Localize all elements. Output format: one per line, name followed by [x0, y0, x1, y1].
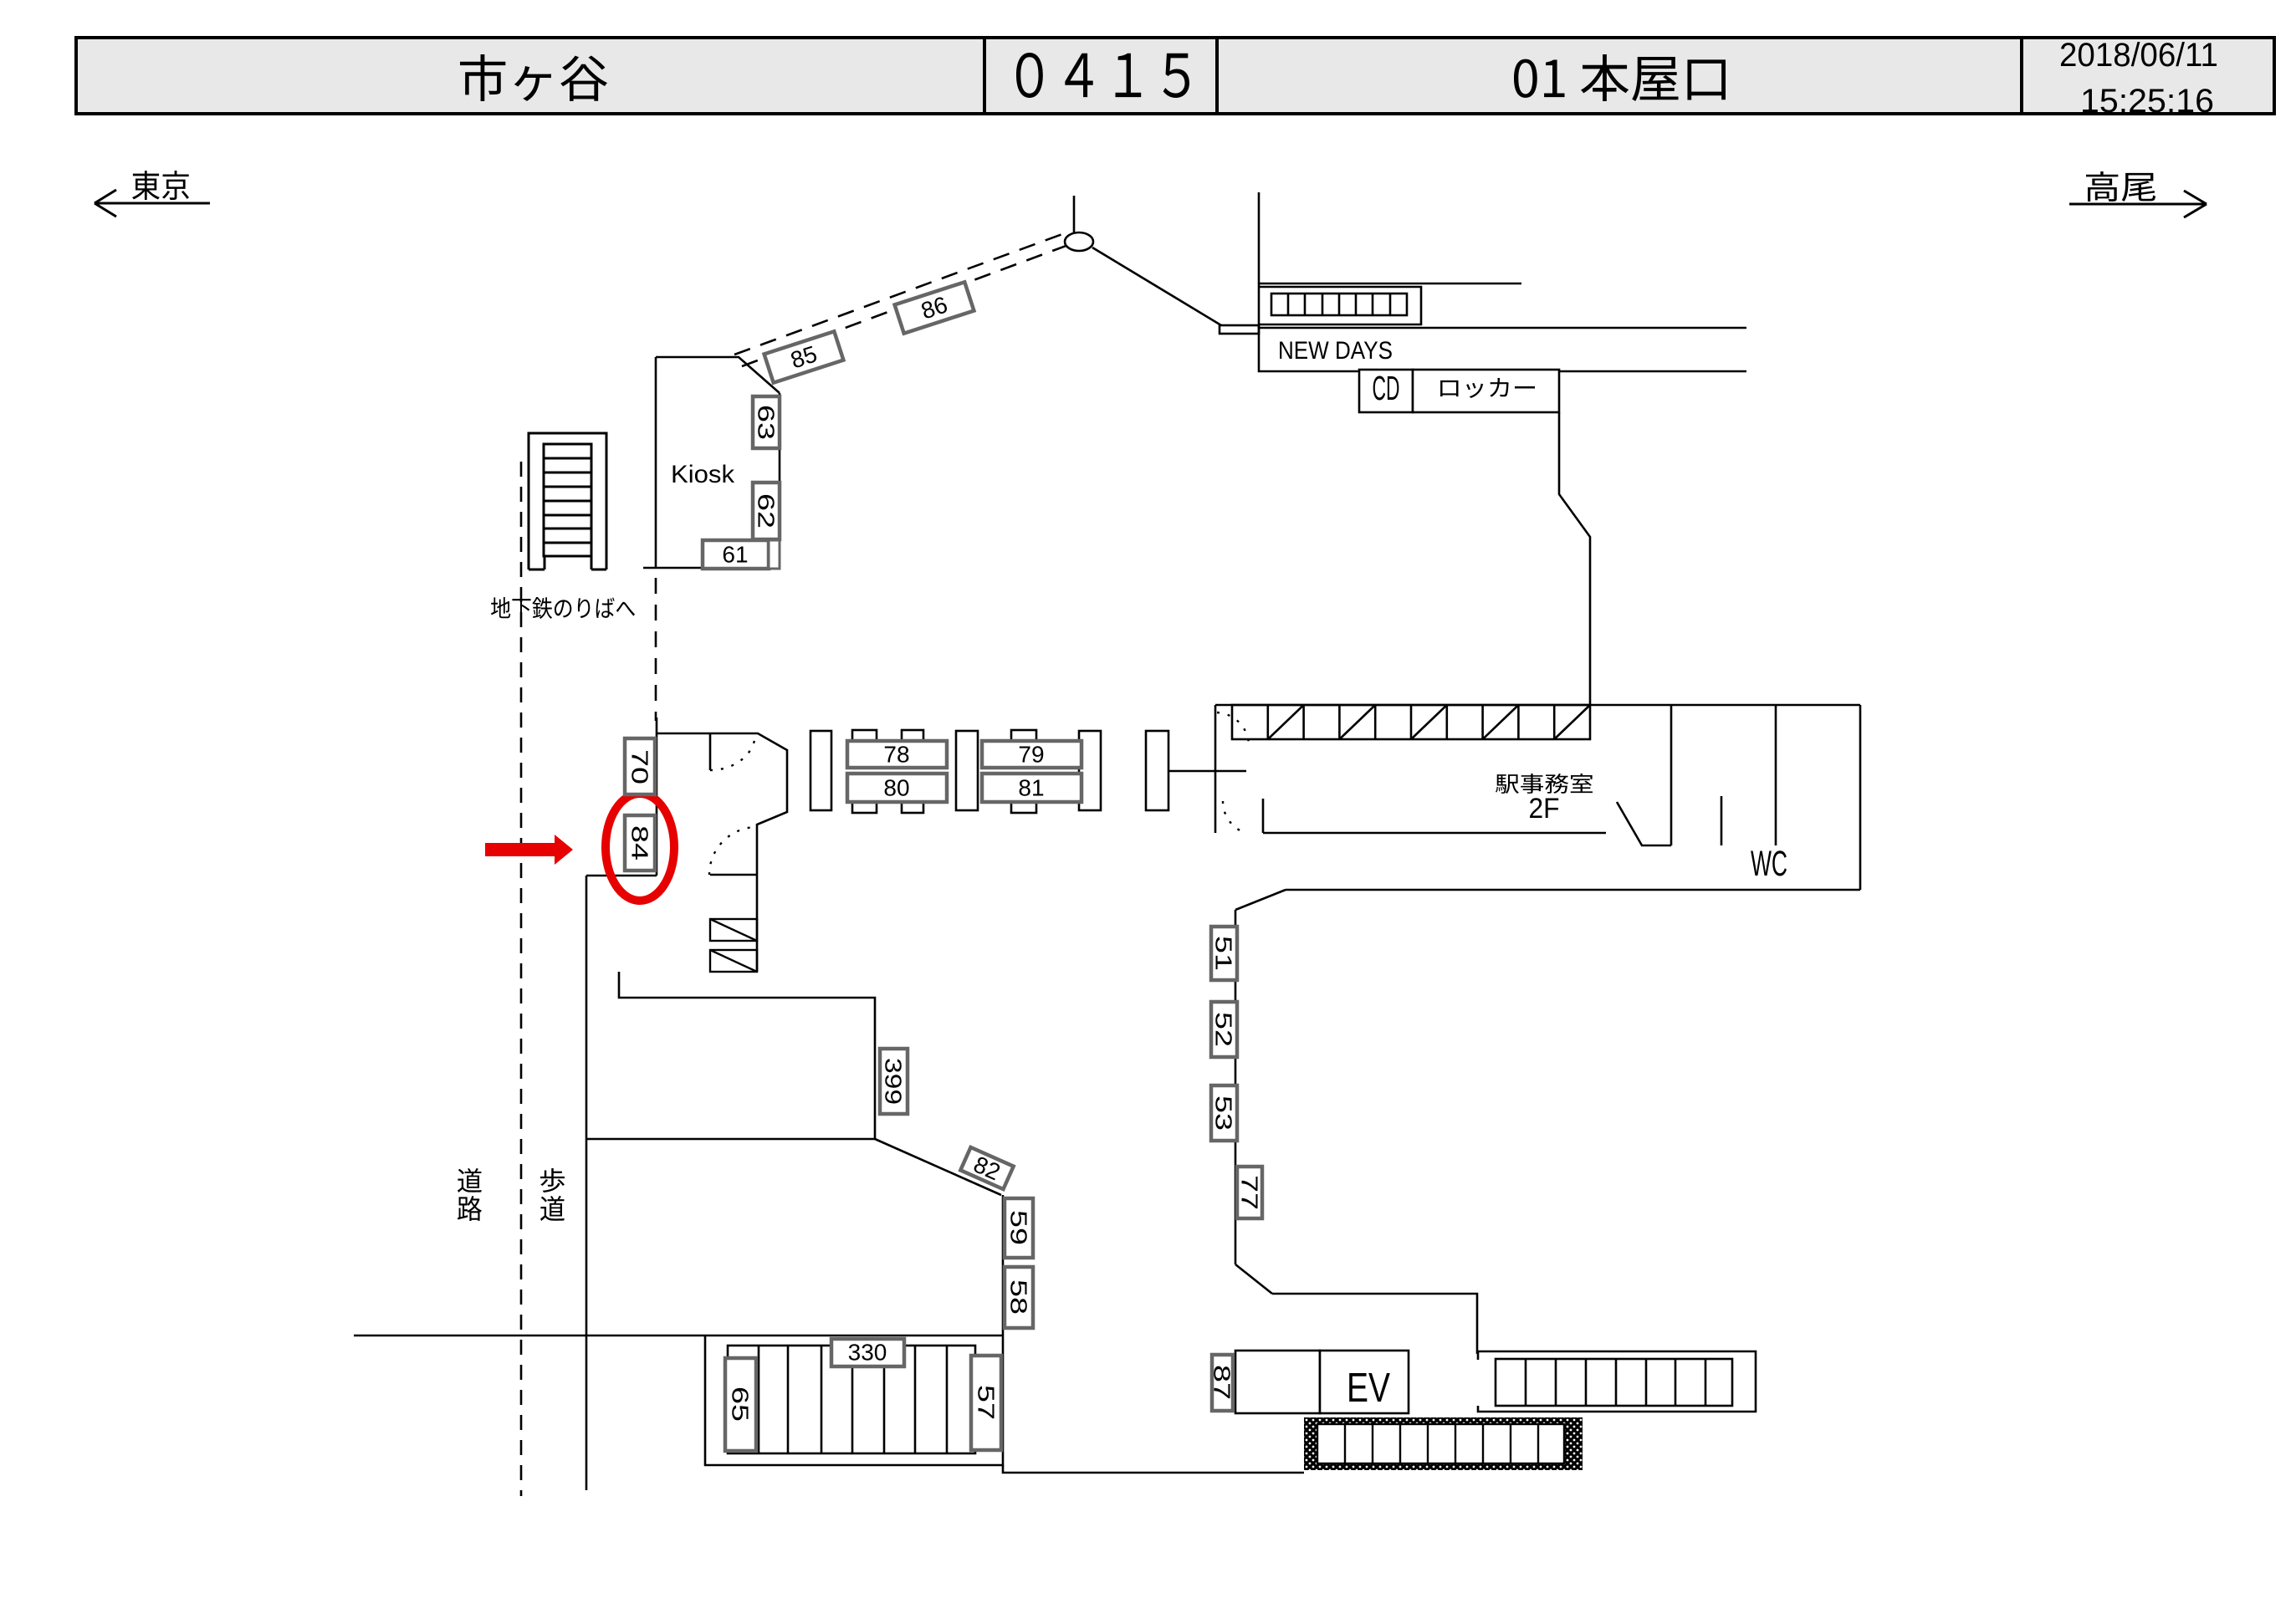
- svg-text:61: 61: [722, 542, 748, 568]
- svg-text:81: 81: [1018, 775, 1044, 801]
- svg-text:Kiosk: Kiosk: [671, 461, 735, 488]
- svg-text:87: 87: [1209, 1365, 1235, 1400]
- svg-text:78: 78: [883, 742, 909, 768]
- svg-text:80: 80: [883, 775, 909, 801]
- svg-text:2018/06/11: 2018/06/11: [2059, 37, 2218, 74]
- svg-text:CD: CD: [1373, 369, 1400, 407]
- svg-text:63: 63: [754, 405, 780, 440]
- svg-text:EV: EV: [1347, 1366, 1390, 1411]
- svg-text:NEW DAYS: NEW DAYS: [1278, 337, 1393, 365]
- svg-text:79: 79: [1018, 742, 1044, 768]
- svg-text:51: 51: [1211, 936, 1237, 971]
- svg-text:62: 62: [754, 493, 780, 529]
- svg-text:77: 77: [1237, 1175, 1263, 1210]
- svg-text:WC: WC: [1751, 844, 1787, 884]
- svg-text:2F: 2F: [1529, 793, 1560, 825]
- svg-text:70: 70: [627, 749, 653, 784]
- svg-text:59: 59: [1006, 1210, 1032, 1245]
- svg-text:15:25:16: 15:25:16: [2080, 83, 2214, 120]
- svg-text:53: 53: [1211, 1095, 1237, 1131]
- svg-text:65: 65: [728, 1387, 754, 1422]
- svg-text:52: 52: [1211, 1012, 1237, 1047]
- svg-text:58: 58: [1006, 1279, 1032, 1315]
- svg-text:330: 330: [848, 1340, 887, 1366]
- svg-text:57: 57: [974, 1385, 1000, 1420]
- svg-text:399: 399: [881, 1058, 907, 1105]
- svg-text:84: 84: [627, 825, 653, 861]
